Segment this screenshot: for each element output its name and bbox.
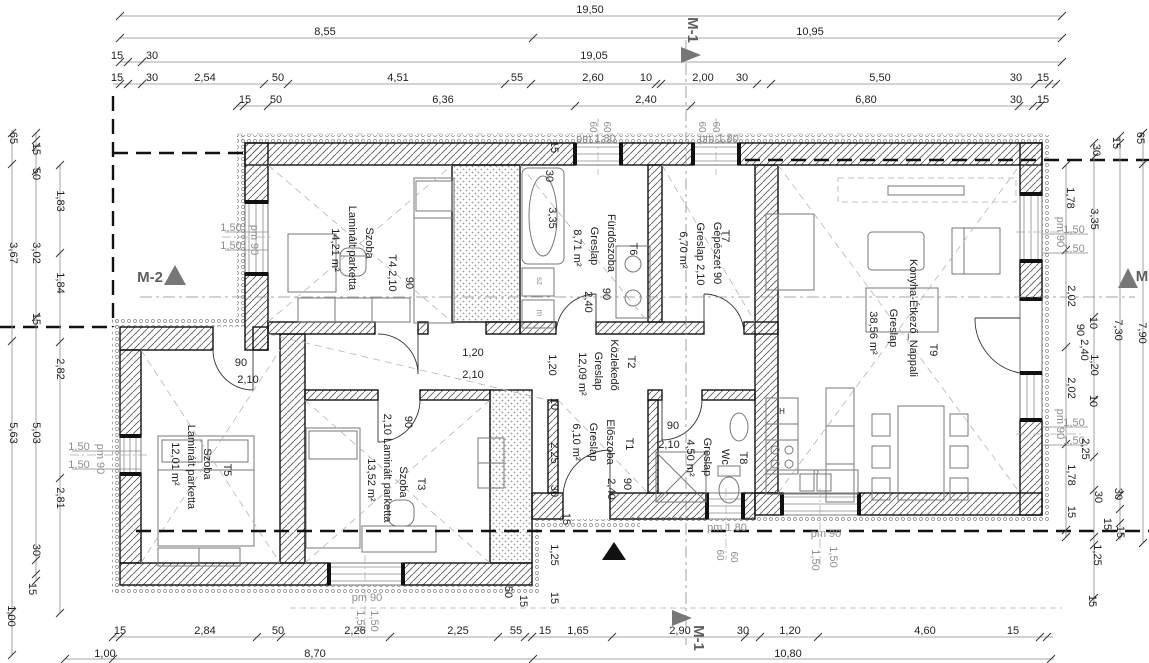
- dim-label: 2,40: [635, 94, 656, 106]
- room-tag-t6: T6: [627, 243, 639, 256]
- dim-label: 90: [1074, 324, 1086, 336]
- window-kitchen-bottom: [780, 493, 861, 515]
- room-floor-t4: Laminált parketta: [346, 206, 358, 291]
- dim-label: 15: [111, 72, 123, 84]
- dim-label: 2,10: [658, 439, 679, 451]
- room-label-t2: Közlekedő: [608, 339, 620, 390]
- dim-label: 10: [548, 398, 560, 410]
- dim-label: 3,02: [30, 242, 42, 263]
- room-t4: [268, 165, 452, 322]
- dim-label: 30: [30, 544, 42, 556]
- dim-label: 30: [146, 50, 158, 62]
- dim-label: pm 90: [811, 528, 842, 540]
- dim-label: 8,70: [304, 648, 325, 660]
- dim-label: 30: [1010, 94, 1022, 106]
- room-label-t3: Szoba: [397, 466, 409, 498]
- room-floor-t7: Greslap 2,10: [694, 223, 706, 286]
- dim-label: pm 90: [248, 225, 260, 256]
- room-tag-t7: T7: [719, 230, 731, 243]
- marker-triangle-m2: [164, 265, 186, 285]
- section-marker-m-right: M: [1136, 268, 1149, 285]
- dim-label: 90: [235, 357, 247, 369]
- dim-label: 7,30: [1112, 319, 1124, 340]
- dim-label: 2,82: [54, 358, 66, 379]
- section-marker-m1-top: M-1: [684, 17, 701, 43]
- dim-label: 15: [114, 625, 126, 637]
- dim-label: 90: [402, 416, 414, 428]
- dim-label: 15: [548, 592, 560, 604]
- dim-label: 1,50: [1063, 417, 1084, 429]
- floor-plan-drawing: 19,508,5510,95153019,0515302,54504,51552…: [0, 0, 1149, 663]
- dim-label: 1,78: [1065, 464, 1077, 485]
- dim-label: 1,00: [5, 605, 17, 626]
- dim-label: 15: [1086, 595, 1098, 607]
- room-label-t1: Előszoba: [604, 419, 616, 465]
- dim-label: 6,36: [432, 94, 453, 106]
- section-marker-m2: M-2: [137, 269, 163, 286]
- dim-label: 10: [1087, 317, 1099, 329]
- dim-label: 3,35: [546, 207, 558, 228]
- dim-label: 1,65: [567, 625, 588, 637]
- dim-label: 4,51: [387, 72, 408, 84]
- dim-label: 15: [539, 625, 551, 637]
- dim-label: 1,50: [68, 459, 89, 471]
- dim-label: 10,95: [796, 26, 824, 38]
- dim-label: 19,05: [580, 50, 608, 62]
- dim-label: 15: [1037, 94, 1049, 106]
- dim-label: H: [779, 407, 785, 416]
- dim-label: 60: [601, 121, 612, 133]
- dim-label: 1,50: [68, 441, 89, 453]
- dim-label: 4,60: [914, 625, 935, 637]
- dim-label: 60: [710, 121, 721, 133]
- dim-label: 60: [728, 551, 739, 563]
- terrace-door-right: [1020, 297, 1042, 422]
- window-living-right: [1020, 192, 1042, 263]
- dim-label: 2,25: [447, 625, 468, 637]
- room-area-t6: 8,71 m²: [571, 229, 583, 267]
- dim-label: 1,83: [54, 190, 66, 211]
- dim-label: 1,50: [220, 222, 241, 234]
- room-tag-t8: T8: [737, 452, 749, 465]
- room-label-t9: Konyha-Étkező_Nappali: [907, 259, 920, 377]
- dim-label: 6,80: [855, 94, 876, 106]
- dim-label: pm 90: [352, 592, 383, 604]
- dim-label: 90: [600, 288, 612, 300]
- dim-label: 2,54: [194, 72, 215, 84]
- room-area-t4: 14,21 m²: [329, 228, 341, 272]
- floor-plan-canvas: 19,508,5510,95153019,0515302,54504,51552…: [0, 0, 1149, 663]
- room-floor-t5: Laminált parketta: [185, 425, 197, 510]
- dim-label: 15: [1007, 625, 1019, 637]
- dim-label: 55: [511, 72, 523, 84]
- dim-label: 2,84: [194, 625, 215, 637]
- dim-label: 2,40: [582, 291, 594, 312]
- dim-label: 30: [1092, 491, 1104, 503]
- window-t3-bottom: [327, 563, 405, 585]
- dim-label: 10,80: [774, 648, 802, 660]
- dim-label: 3,35: [1088, 208, 1100, 229]
- dim-label: pm 1,80: [707, 522, 747, 534]
- dim-label: 30: [543, 170, 555, 182]
- room-label-t4: Szoba: [363, 227, 375, 259]
- dim-label: sz: [535, 277, 544, 285]
- dim-label: 30: [1090, 144, 1102, 156]
- room-area-t5: 12,01 m²: [169, 442, 181, 486]
- dim-label: 65: [1134, 132, 1146, 144]
- dim-label: 2,00: [692, 72, 713, 84]
- dim-label: 2,90: [669, 625, 690, 637]
- dim-label: 1,20: [1088, 354, 1100, 375]
- dim-label: 1,84: [54, 272, 66, 293]
- dim-label: 30: [1010, 72, 1022, 84]
- room-area-t8: 4,50 m²: [684, 439, 696, 477]
- dim-label: 7,90: [1136, 322, 1148, 343]
- room-area-t9: 38,56 m²: [867, 311, 879, 355]
- dim-label: 1,50: [809, 549, 821, 570]
- dim-label: 15: [548, 141, 560, 153]
- dim-label: 15: [1037, 72, 1049, 84]
- room-tag-t2: T2: [625, 356, 637, 369]
- room-label-t6: Fürdőszoba: [605, 214, 617, 273]
- dim-label: 15: [30, 313, 42, 325]
- room-floor-t9: Greslap: [887, 309, 899, 348]
- dim-label: 1,50: [1063, 224, 1084, 236]
- dim-label: 1,20: [462, 347, 483, 359]
- dim-label: 90: [621, 478, 633, 490]
- marker-triangle-m1-bottom: [672, 610, 692, 626]
- dim-label: 1,50: [220, 240, 241, 252]
- room-label-t8: Wc: [719, 449, 731, 465]
- room-label-t5: Szoba: [201, 448, 213, 480]
- room-t7: [662, 165, 755, 322]
- dim-label: 50: [270, 94, 282, 106]
- dim-label: 5,63: [7, 422, 19, 443]
- room-floor-t2: Greslap: [592, 352, 604, 391]
- dim-label: 30: [1112, 488, 1124, 500]
- dim-label: 55: [510, 625, 522, 637]
- dim-label: 1,50: [368, 610, 380, 631]
- dim-label: 15: [111, 50, 123, 62]
- dim-label: 50: [502, 586, 514, 598]
- room-floor-t6: Greslap: [588, 227, 600, 266]
- dim-label: 15: [1065, 506, 1077, 518]
- dim-label: 2,10: [462, 369, 483, 381]
- dim-label: m: [535, 310, 544, 317]
- dim-label: 1,25: [1091, 544, 1103, 565]
- room-tag-t5: T5: [221, 464, 233, 477]
- room-t2: [268, 334, 548, 390]
- dim-label: 30: [548, 485, 560, 497]
- dim-label: 15: [26, 583, 38, 595]
- window-wc-bottom: [705, 493, 745, 519]
- dim-label: 1,25: [548, 544, 560, 565]
- dim-label: 5,50: [869, 72, 890, 84]
- dim-label: 2,10: [237, 374, 258, 386]
- dim-label: 2,25: [548, 442, 560, 463]
- dim-label: 65: [7, 132, 19, 144]
- dim-label: pm 1,80: [699, 133, 739, 145]
- dim-label: 15: [1101, 518, 1113, 530]
- section-marker-m1-bottom: M-1: [690, 625, 707, 651]
- dim-label: 2,25: [1079, 438, 1091, 459]
- entrance-arrow: [602, 542, 626, 560]
- room-area-t2: 12,09 m²: [576, 352, 588, 396]
- room-area-t7: 6,70 m²: [677, 231, 689, 269]
- dim-label: 15: [239, 94, 251, 106]
- dim-label: 60: [714, 549, 725, 561]
- room-floor-t3: 2,10 Laminált parketta: [381, 414, 393, 524]
- marker-triangle-m1-top: [681, 47, 701, 63]
- dim-label: 2,81: [54, 487, 66, 508]
- dim-label: 15: [560, 513, 572, 525]
- dim-label: 15: [1110, 137, 1122, 149]
- dim-label: 60: [696, 121, 707, 133]
- dim-label: 3,67: [7, 242, 19, 263]
- dim-label: 50: [272, 72, 284, 84]
- room-area-t1: 6,10 m²: [570, 423, 582, 461]
- dim-label: 30: [736, 72, 748, 84]
- dim-label: 50: [272, 625, 284, 637]
- room-tag-t1: T1: [623, 438, 635, 451]
- dim-label: 10: [1087, 395, 1099, 407]
- dim-label: 30: [146, 72, 158, 84]
- room-tag-t9: T9: [927, 344, 939, 357]
- dim-label: 1,78: [1064, 187, 1076, 208]
- dim-label: pm 1,80: [576, 133, 616, 145]
- dim-label: 1,20: [546, 354, 558, 375]
- room-tag-t3: T3: [415, 478, 427, 491]
- room-floor-t1: Greslap: [587, 423, 599, 462]
- dim-label: 2,60: [582, 72, 603, 84]
- room-tag-t4: T4 2,10: [386, 254, 398, 291]
- dim-label: 2,40: [605, 478, 617, 499]
- room-floor-t8: Greslap: [701, 438, 713, 477]
- dim-label: 1,50: [827, 546, 839, 567]
- dim-label: 1,20: [779, 625, 800, 637]
- dim-label: 10: [640, 72, 652, 84]
- dim-label: 1,00: [94, 648, 115, 660]
- dim-label: 15: [30, 143, 42, 155]
- dim-label: 90: [667, 420, 679, 432]
- dim-label: 50: [30, 168, 42, 180]
- dim-label: 15: [1114, 526, 1126, 538]
- dim-label: 8,55: [314, 26, 335, 38]
- dim-label: 1,50: [354, 610, 366, 631]
- dim-label: 15: [517, 595, 529, 607]
- dim-label: 2,02: [1065, 377, 1077, 398]
- room-area-t3: 13,52 m²: [365, 458, 377, 502]
- dim-label: 1,50: [1063, 243, 1084, 255]
- dim-label: 90: [403, 277, 415, 289]
- dim-label: 2,02: [1065, 285, 1077, 306]
- dim-label: 19,50: [576, 4, 604, 16]
- dim-label: pm 90: [94, 444, 106, 475]
- dim-label: 30: [737, 625, 749, 637]
- dim-label: 5,03: [30, 422, 42, 443]
- dim-label: 60: [587, 121, 598, 133]
